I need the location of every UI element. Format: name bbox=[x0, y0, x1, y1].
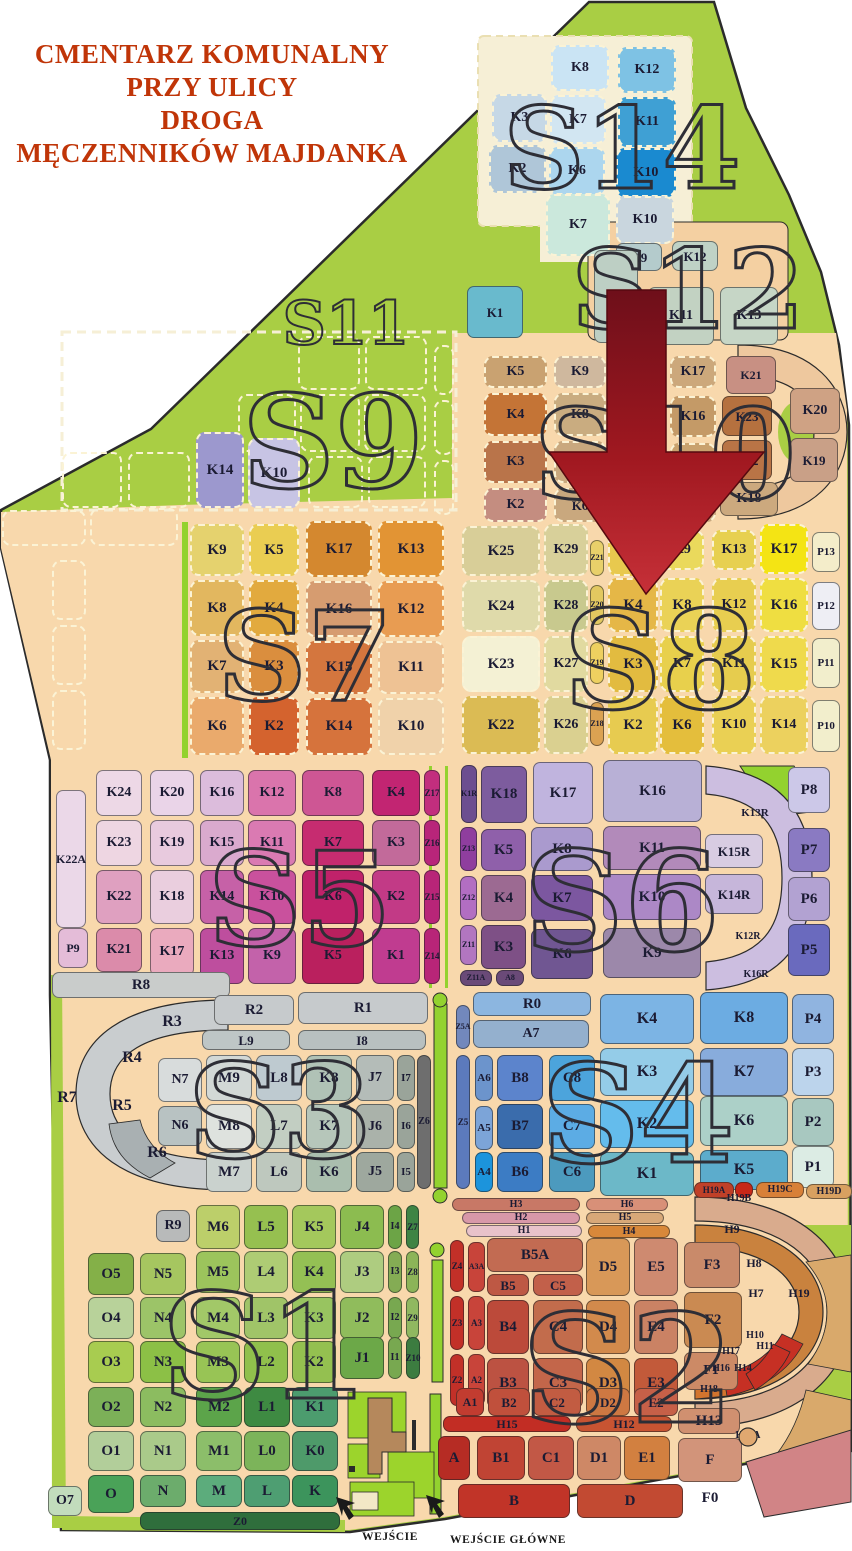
map-block-K24: K24 bbox=[96, 770, 142, 816]
map-block bbox=[364, 394, 426, 452]
map-block-B7: B7 bbox=[497, 1104, 543, 1149]
map-block-K16: K16 bbox=[200, 770, 244, 816]
map-block-K13R: K13R bbox=[735, 806, 775, 820]
map-block-H13: H13 bbox=[678, 1408, 740, 1434]
map-block-K6: K6 bbox=[549, 147, 605, 195]
map-block-O2: O2 bbox=[88, 1387, 134, 1427]
map-block-K14R: K14R bbox=[705, 874, 763, 914]
map-block-L1: L1 bbox=[244, 1387, 290, 1427]
map-block-K23: K23 bbox=[96, 820, 142, 866]
map-block-A: A bbox=[438, 1436, 470, 1480]
map-block-K10: K10 bbox=[610, 488, 666, 522]
map-block-K20: K20 bbox=[790, 388, 840, 434]
map-block-A7: A7 bbox=[473, 1020, 589, 1048]
map-block-K9: K9 bbox=[603, 928, 701, 978]
map-block-K12: K12 bbox=[378, 581, 444, 637]
map-block-A8: A8 bbox=[496, 970, 524, 986]
map-block-K2: K2 bbox=[489, 145, 546, 193]
map-block-Z18: Z18 bbox=[590, 702, 604, 746]
map-block bbox=[434, 345, 454, 395]
map-block-K5: K5 bbox=[292, 1205, 336, 1249]
map-block-P5: P5 bbox=[788, 924, 830, 976]
map-block-K5: K5 bbox=[608, 526, 658, 576]
map-block-K2: K2 bbox=[249, 697, 299, 755]
map-block-K3: K3 bbox=[249, 640, 299, 693]
map-block-L7: L7 bbox=[256, 1104, 302, 1149]
map-block-K4: K4 bbox=[372, 770, 420, 816]
map-block-K2: K2 bbox=[600, 1100, 694, 1148]
map-block-O1: O1 bbox=[88, 1431, 134, 1471]
map-block-K14: K14 bbox=[196, 432, 244, 508]
map-block-B2: B2 bbox=[488, 1388, 530, 1416]
map-block bbox=[594, 250, 638, 343]
map-block-N2: N2 bbox=[140, 1387, 186, 1427]
map-block-K7: K7 bbox=[306, 1104, 352, 1149]
map-block-H8: H8 bbox=[740, 1256, 768, 1270]
map-block-K25: K25 bbox=[462, 526, 540, 576]
map-block-K13: K13 bbox=[378, 521, 444, 577]
map-block-Z4: Z4 bbox=[450, 1240, 464, 1292]
map-block-K5: K5 bbox=[249, 524, 299, 576]
map-block-M: M bbox=[196, 1475, 242, 1507]
map-block-K12: K12 bbox=[248, 770, 296, 816]
map-block bbox=[365, 336, 427, 390]
map-block-K2: K2 bbox=[292, 1341, 336, 1383]
map-block-K3: K3 bbox=[600, 1048, 694, 1096]
map-block-K18: K18 bbox=[481, 766, 527, 823]
map-block-N6: N6 bbox=[158, 1106, 202, 1146]
map-block-Z5A: Z5A bbox=[456, 1005, 470, 1049]
main-entrance-label: WEJŚCIE GŁÓWNE bbox=[450, 1534, 566, 1546]
map-block bbox=[434, 400, 454, 455]
map-block-K28: K28 bbox=[544, 580, 588, 632]
map-block-K7: K7 bbox=[546, 194, 610, 256]
title-line-2: PRZY ULICY bbox=[6, 71, 418, 104]
map-block-J1: J1 bbox=[340, 1337, 384, 1379]
map-block-M9: M9 bbox=[206, 1055, 252, 1101]
map-block-P4: P4 bbox=[792, 994, 834, 1044]
map-block-I2: I2 bbox=[388, 1297, 402, 1339]
map-block-K15: K15 bbox=[306, 641, 372, 694]
map-block-K7: K7 bbox=[550, 95, 606, 144]
map-block-K17: K17 bbox=[306, 521, 372, 577]
map-block-K10: K10 bbox=[248, 870, 296, 924]
map-block-K22: K22 bbox=[96, 870, 142, 924]
map-block-Z5: Z5 bbox=[456, 1055, 470, 1189]
map-block-H2: H2 bbox=[462, 1212, 580, 1224]
map-block-H19: H19 bbox=[782, 1286, 816, 1300]
map-block-K2: K2 bbox=[608, 696, 658, 754]
map-block-K1R: K1R bbox=[461, 765, 477, 823]
map-block-J3: J3 bbox=[340, 1251, 384, 1293]
map-block-K23: K23 bbox=[722, 396, 772, 436]
map-block-K6: K6 bbox=[531, 929, 593, 979]
map-block-K12: K12 bbox=[672, 241, 718, 271]
map-block-L2: L2 bbox=[244, 1341, 288, 1383]
map-block-D5: D5 bbox=[586, 1238, 630, 1296]
map-block-Z7: Z7 bbox=[406, 1205, 419, 1249]
map-block-K6: K6 bbox=[554, 488, 606, 522]
map-block-K10: K10 bbox=[603, 874, 701, 920]
map-block-K8: K8 bbox=[302, 770, 364, 816]
map-block-K3: K3 bbox=[484, 441, 547, 483]
map-block bbox=[308, 456, 363, 508]
map-block-K20: K20 bbox=[150, 770, 194, 816]
map-block-L3: L3 bbox=[244, 1297, 288, 1339]
map-block-H19B: H19B bbox=[722, 1193, 756, 1205]
map-block-R2: R2 bbox=[214, 995, 294, 1025]
map-block-D2: D2 bbox=[586, 1388, 630, 1416]
map-block-K9: K9 bbox=[660, 530, 704, 570]
map-block-C7: C7 bbox=[549, 1104, 595, 1149]
map-block-K16: K16 bbox=[760, 578, 808, 632]
map-block-D4: D4 bbox=[586, 1300, 630, 1354]
map-block-K2: K2 bbox=[372, 870, 420, 924]
map-block-M5: M5 bbox=[196, 1251, 240, 1293]
map-block-C1: C1 bbox=[528, 1436, 574, 1480]
map-title: CMENTARZ KOMUNALNY PRZY ULICY DROGA MĘCZ… bbox=[6, 38, 418, 170]
map-block-F3: F3 bbox=[684, 1242, 740, 1288]
map-block-C8: C8 bbox=[549, 1055, 595, 1101]
entrance-label: WEJŚCIE bbox=[362, 1531, 418, 1543]
title-line-1: CMENTARZ KOMUNALNY bbox=[6, 38, 418, 71]
map-block-R7: R7 bbox=[50, 1088, 84, 1108]
map-block-K23: K23 bbox=[462, 636, 540, 692]
map-block-K12R: K12R bbox=[728, 930, 768, 944]
map-block-K16: K16 bbox=[306, 581, 372, 637]
map-block-K8: K8 bbox=[700, 992, 788, 1044]
map-block-J4: J4 bbox=[340, 1205, 384, 1249]
map-block-K8: K8 bbox=[554, 393, 606, 436]
map-block-K7: K7 bbox=[554, 441, 606, 483]
map-block-K10: K10 bbox=[616, 196, 674, 244]
map-block-H6: H6 bbox=[586, 1198, 668, 1211]
map-block-K16: K16 bbox=[670, 396, 716, 437]
map-block-K4: K4 bbox=[292, 1251, 336, 1293]
map-block-K3: K3 bbox=[608, 636, 658, 692]
map-block-K15: K15 bbox=[670, 443, 716, 484]
map-block-R5: R5 bbox=[105, 1096, 139, 1116]
map-block-P8: P8 bbox=[788, 767, 830, 813]
map-block-K6: K6 bbox=[190, 697, 244, 755]
map-block-I6: I6 bbox=[397, 1104, 415, 1149]
map-block-Z15: Z15 bbox=[424, 870, 440, 924]
map-block-C6: C6 bbox=[549, 1152, 595, 1192]
map-block-K3: K3 bbox=[492, 94, 547, 142]
map-block-K13: K13 bbox=[712, 530, 756, 570]
map-block-M6: M6 bbox=[196, 1205, 240, 1249]
map-block-K3: K3 bbox=[292, 1297, 336, 1339]
map-block-F0: F0 bbox=[690, 1486, 730, 1510]
map-block-C4: C4 bbox=[533, 1300, 583, 1354]
map-block-L6: L6 bbox=[256, 1152, 302, 1192]
map-block-M2: M2 bbox=[196, 1387, 242, 1427]
map-block-L5: L5 bbox=[244, 1205, 288, 1249]
map-block bbox=[368, 456, 426, 508]
map-block-N1: N1 bbox=[140, 1431, 186, 1471]
map-block-B5A: B5A bbox=[487, 1238, 583, 1272]
map-block bbox=[52, 690, 86, 750]
map-block-A4: A4 bbox=[475, 1152, 493, 1192]
map-block-I4: I4 bbox=[388, 1205, 402, 1249]
map-block-K6: K6 bbox=[302, 870, 364, 924]
map-block-L: L bbox=[244, 1475, 290, 1507]
map-block-N5: N5 bbox=[140, 1253, 186, 1295]
map-block-K9: K9 bbox=[554, 356, 606, 388]
map-block-I3: I3 bbox=[388, 1251, 402, 1293]
map-block-K1: K1 bbox=[600, 1152, 694, 1196]
map-block-K3: K3 bbox=[481, 925, 526, 969]
map-block-K17: K17 bbox=[670, 356, 716, 388]
map-block-Z21: Z21 bbox=[590, 540, 604, 576]
map-block-K4: K4 bbox=[608, 578, 658, 632]
map-block-K1: K1 bbox=[467, 286, 523, 338]
title-line-4: MĘCZENNIKÓW MAJDANKA bbox=[6, 137, 418, 170]
map-block-A5: A5 bbox=[475, 1106, 493, 1150]
map-block-K7: K7 bbox=[531, 875, 593, 921]
map-block bbox=[90, 508, 178, 546]
map-block-D: D bbox=[577, 1484, 683, 1518]
map-block-H1: H1 bbox=[466, 1225, 582, 1237]
map-block-K29: K29 bbox=[544, 524, 588, 576]
map-block-K8: K8 bbox=[531, 827, 593, 871]
map-block-A1: A1 bbox=[456, 1388, 484, 1416]
map-block-K5: K5 bbox=[302, 928, 364, 984]
map-block-J7: J7 bbox=[356, 1055, 394, 1101]
map-block-K0: K0 bbox=[292, 1431, 338, 1471]
map-block-R1: R1 bbox=[298, 992, 428, 1024]
map-block-I7: I7 bbox=[397, 1055, 415, 1101]
map-block-J6: J6 bbox=[356, 1104, 394, 1149]
map-block-Z11A: Z11A bbox=[460, 970, 492, 986]
map-block-K6: K6 bbox=[700, 1096, 788, 1146]
map-block-K12: K12 bbox=[610, 393, 666, 436]
map-block-K14: K14 bbox=[200, 870, 244, 924]
map-block-N3: N3 bbox=[140, 1341, 186, 1383]
map-block-P3: P3 bbox=[792, 1048, 834, 1096]
map-block-H17: H17 bbox=[716, 1346, 746, 1358]
map-block-N4: N4 bbox=[140, 1297, 186, 1339]
map-block-K8: K8 bbox=[306, 1055, 352, 1101]
map-block-K19: K19 bbox=[790, 438, 838, 482]
map-block-K12: K12 bbox=[712, 578, 756, 632]
map-block-K18: K18 bbox=[720, 482, 778, 516]
map-block-Z12: Z12 bbox=[460, 876, 477, 920]
map-block-P13: P13 bbox=[812, 532, 840, 572]
map-block-D1: D1 bbox=[577, 1436, 621, 1480]
map-block-O7: O7 bbox=[48, 1486, 82, 1516]
map-block-K11: K11 bbox=[712, 636, 756, 692]
map-block-K27: K27 bbox=[544, 636, 588, 692]
map-block-F: F bbox=[678, 1438, 742, 1482]
map-block-H13A: H13A bbox=[730, 1430, 766, 1442]
map-block-H9: H9 bbox=[718, 1222, 746, 1236]
map-block-K4: K4 bbox=[484, 393, 547, 436]
map-block-K14: K14 bbox=[670, 486, 716, 522]
map-block-P2: P2 bbox=[792, 1098, 834, 1146]
map-block-K17: K17 bbox=[533, 762, 593, 824]
map-block-K13: K13 bbox=[610, 356, 666, 388]
title-line-3: DROGA bbox=[6, 104, 418, 137]
map-block-K21: K21 bbox=[726, 356, 776, 394]
map-block-O4: O4 bbox=[88, 1297, 134, 1339]
map-block-K22: K22 bbox=[722, 440, 772, 480]
map-block-Z0: Z0 bbox=[140, 1512, 340, 1530]
map-block bbox=[62, 452, 122, 508]
map-block-E1: E1 bbox=[624, 1436, 670, 1480]
map-block-K5: K5 bbox=[481, 829, 526, 871]
map-block-P12: P12 bbox=[812, 582, 840, 630]
map-block-L9: L9 bbox=[202, 1030, 290, 1050]
map-block-E2: E2 bbox=[634, 1388, 678, 1416]
map-block-K24: K24 bbox=[462, 580, 540, 632]
map-block-K22: K22 bbox=[462, 696, 540, 754]
map-block-I5: I5 bbox=[397, 1152, 415, 1192]
map-block bbox=[298, 336, 360, 390]
map-block-A6: A6 bbox=[475, 1055, 493, 1101]
map-block-I1: I1 bbox=[388, 1337, 402, 1379]
map-block-P11: P11 bbox=[812, 638, 840, 688]
map-block-Z14: Z14 bbox=[424, 928, 440, 984]
map-block-K17: K17 bbox=[150, 928, 194, 976]
map-block-N7: N7 bbox=[158, 1058, 202, 1102]
map-block-I8: I8 bbox=[298, 1030, 426, 1050]
map-block-R4: R4 bbox=[115, 1048, 149, 1068]
map-block-Z20: Z20 bbox=[590, 585, 604, 625]
map-block-R6: R6 bbox=[140, 1143, 174, 1163]
map-block-H4: H4 bbox=[588, 1225, 670, 1238]
map-block-H19D: H19D bbox=[806, 1184, 852, 1199]
map-block-R8: R8 bbox=[52, 972, 230, 998]
map-block-Z10: Z10 bbox=[406, 1337, 420, 1379]
map-block-H19C: H19C bbox=[756, 1182, 804, 1198]
map-block-B: B bbox=[458, 1484, 570, 1518]
map-block-A3A: A3A bbox=[468, 1242, 485, 1292]
map-block-K7: K7 bbox=[700, 1048, 788, 1096]
map-block-K15R: K15R bbox=[705, 834, 763, 868]
map-block-R9: R9 bbox=[156, 1210, 190, 1242]
map-block-H14: H14 bbox=[728, 1363, 758, 1375]
map-block-K7: K7 bbox=[660, 636, 704, 692]
map-block-K13: K13 bbox=[720, 287, 778, 345]
map-block-K14: K14 bbox=[306, 698, 372, 755]
map-block-H11: H11 bbox=[750, 1341, 780, 1353]
map-block-E4: E4 bbox=[634, 1300, 678, 1354]
map-block-P10: P10 bbox=[812, 700, 840, 752]
map-block-M8: M8 bbox=[206, 1104, 252, 1149]
map-block-E5: E5 bbox=[634, 1238, 678, 1296]
map-block-K11: K11 bbox=[603, 826, 701, 870]
map-block-L8: L8 bbox=[256, 1055, 302, 1101]
map-block-Z8: Z8 bbox=[406, 1251, 419, 1293]
map-block-K8: K8 bbox=[551, 45, 609, 91]
map-block-O3: O3 bbox=[88, 1341, 134, 1383]
map-block-K11: K11 bbox=[610, 441, 666, 483]
map-block-K1: K1 bbox=[292, 1387, 338, 1427]
map-block-H5: H5 bbox=[586, 1212, 664, 1224]
map-block-O5: O5 bbox=[88, 1253, 134, 1295]
map-block-Z19: Z19 bbox=[590, 642, 604, 684]
map-block-L0: L0 bbox=[244, 1431, 290, 1471]
map-block-K10: K10 bbox=[378, 698, 444, 755]
map-block-B6: B6 bbox=[497, 1152, 543, 1192]
map-block-K11: K11 bbox=[648, 287, 714, 345]
map-block bbox=[128, 452, 190, 508]
map-block-P9: P9 bbox=[58, 928, 88, 968]
map-block-K14: K14 bbox=[760, 696, 808, 754]
map-block-H15: H15 bbox=[443, 1416, 571, 1432]
map-block-K8: K8 bbox=[190, 580, 244, 636]
map-block-K6: K6 bbox=[306, 1152, 352, 1192]
map-block-K26: K26 bbox=[544, 696, 588, 754]
map-block-K9: K9 bbox=[248, 928, 296, 984]
map-block-C5: C5 bbox=[533, 1274, 583, 1296]
map-block-Z16: Z16 bbox=[424, 820, 440, 866]
map-block-B5: B5 bbox=[487, 1274, 529, 1296]
map-block-K9: K9 bbox=[190, 524, 244, 576]
map-block-K11: K11 bbox=[248, 820, 296, 866]
map-block-B1: B1 bbox=[477, 1436, 525, 1480]
map-block-M3: M3 bbox=[196, 1341, 240, 1383]
map-block-B8: B8 bbox=[497, 1055, 543, 1101]
map-block-B4: B4 bbox=[487, 1300, 529, 1354]
map-block-M1: M1 bbox=[196, 1431, 242, 1471]
map-block-K3: K3 bbox=[372, 820, 420, 866]
map-block-K15: K15 bbox=[760, 636, 808, 692]
map-block-K16R: K16R bbox=[736, 968, 776, 982]
map-block-K: K bbox=[292, 1475, 338, 1507]
map-block-K17: K17 bbox=[760, 524, 808, 574]
map-block-K4: K4 bbox=[600, 994, 694, 1044]
map-block-K4: K4 bbox=[481, 875, 526, 921]
map-block-P6: P6 bbox=[788, 877, 830, 921]
map-block-L4: L4 bbox=[244, 1251, 288, 1293]
map-block-K11: K11 bbox=[378, 641, 444, 694]
map-block-K5: K5 bbox=[484, 356, 547, 388]
map-block-K16: K16 bbox=[603, 760, 702, 822]
map-block bbox=[52, 625, 86, 685]
map-block-J5: J5 bbox=[356, 1152, 394, 1192]
map-block-R0: R0 bbox=[473, 992, 591, 1016]
map-block-K1: K1 bbox=[372, 928, 420, 984]
map-block-H12: H12 bbox=[576, 1416, 672, 1432]
map-blocks: K8K12K3K7K11K2K6K10K7K10K9K12K11K13K1K14… bbox=[0, 0, 852, 1551]
map-block-K18: K18 bbox=[150, 870, 194, 924]
map-block-K10: K10 bbox=[248, 438, 300, 508]
map-block-K10: K10 bbox=[712, 696, 756, 754]
map-block-K8: K8 bbox=[660, 578, 704, 632]
map-block-K6: K6 bbox=[660, 696, 704, 754]
map-block-H3: H3 bbox=[452, 1198, 580, 1211]
map-block-H7: H7 bbox=[742, 1286, 770, 1300]
map-block bbox=[300, 394, 360, 452]
cemetery-map: K8K12K3K7K11K2K6K10K7K10K9K12K11K13K1K14… bbox=[0, 0, 852, 1551]
map-block-K15: K15 bbox=[200, 820, 244, 866]
map-block-K22A: K22A bbox=[56, 790, 86, 928]
map-block-O: O bbox=[88, 1475, 134, 1513]
map-block-K2: K2 bbox=[484, 488, 547, 522]
map-block-H18: H18 bbox=[694, 1384, 724, 1396]
map-block-R3: R3 bbox=[155, 1012, 189, 1032]
map-block-K12: K12 bbox=[618, 47, 676, 93]
map-block-J2: J2 bbox=[340, 1297, 384, 1339]
map-block bbox=[434, 460, 454, 515]
map-block-K7: K7 bbox=[302, 820, 364, 866]
map-block-K7: K7 bbox=[190, 640, 244, 693]
map-block-Z3: Z3 bbox=[450, 1296, 464, 1350]
map-block-K19: K19 bbox=[150, 820, 194, 866]
map-block-Z17: Z17 bbox=[424, 770, 440, 816]
